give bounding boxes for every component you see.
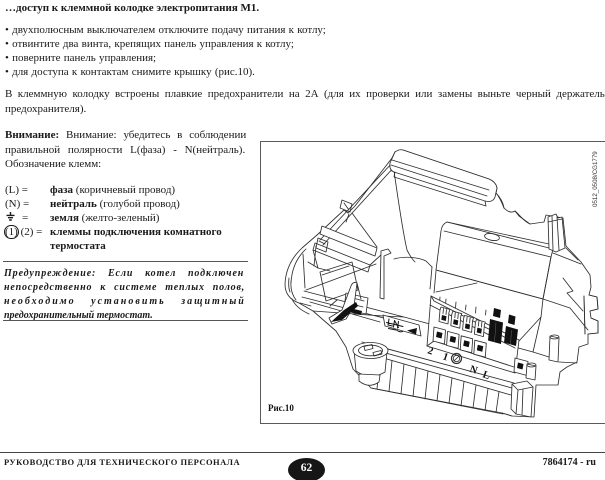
- svg-text:0512_0508/CG1779: 0512_0508/CG1779: [592, 151, 599, 207]
- svg-text:Рис.10: Рис.10: [268, 403, 294, 413]
